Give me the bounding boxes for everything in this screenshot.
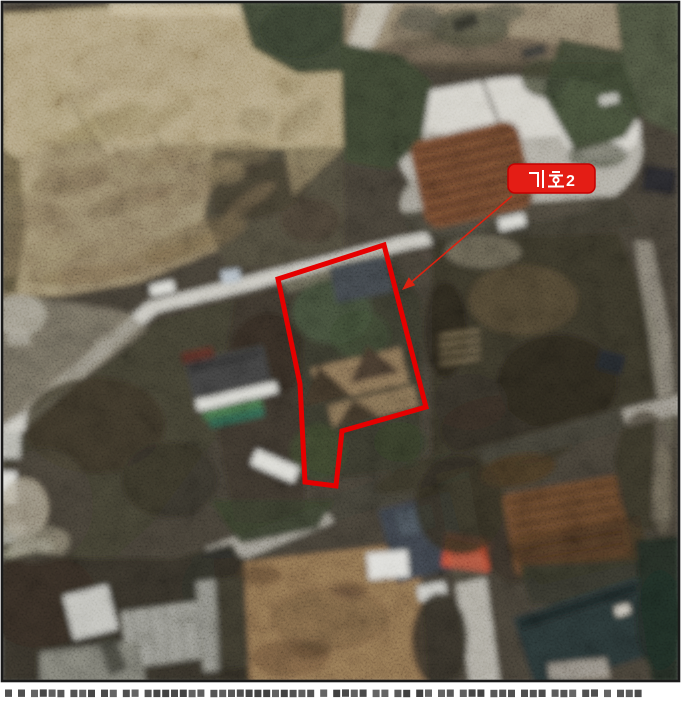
svg-text:2: 2 xyxy=(566,173,575,190)
